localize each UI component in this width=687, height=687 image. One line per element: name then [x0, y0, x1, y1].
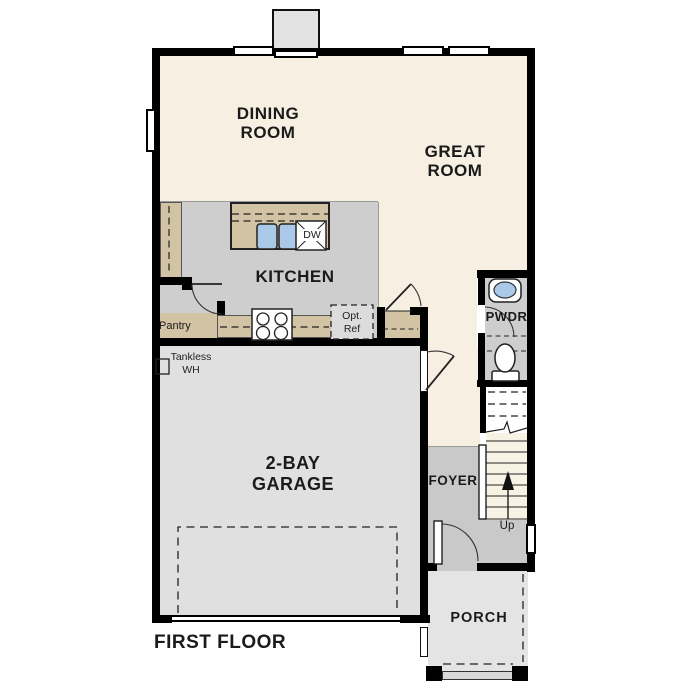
kitchen-dining-boundary	[160, 201, 378, 202]
hall-foyer-boundary	[428, 446, 480, 447]
window	[146, 109, 156, 152]
wall	[152, 338, 428, 346]
wall	[217, 301, 225, 315]
wall	[152, 615, 172, 623]
fireplace-bump-out	[272, 9, 320, 53]
kitchen-greatroom-boundary	[378, 202, 379, 312]
powder-room-label: PWDR	[484, 309, 529, 324]
wall	[377, 307, 385, 346]
garage-door-line	[172, 620, 400, 622]
wall	[477, 380, 535, 387]
kitchen-label: KITCHEN	[225, 267, 365, 286]
great-room-label: GREAT ROOM	[388, 142, 522, 180]
wall	[480, 387, 486, 433]
hallway-floor-lower	[428, 347, 480, 448]
pantry-label: Pantry	[159, 320, 207, 332]
stairs-upper-area	[486, 387, 527, 433]
kitchen-counter-left	[160, 202, 182, 278]
garage-door-line	[172, 615, 400, 617]
wall	[420, 563, 437, 571]
wall	[477, 270, 535, 278]
floor-plan: DINING ROOM GREAT ROOM KITCHEN Pantry Ta…	[0, 0, 687, 687]
wall	[152, 277, 184, 285]
floor-title: FIRST FLOOR	[154, 632, 354, 654]
window	[448, 46, 490, 56]
window	[526, 524, 536, 554]
garage-label: 2-BAY GARAGE	[223, 453, 363, 495]
porch-rail	[420, 627, 428, 657]
stairs-treads-area	[486, 433, 527, 520]
foyer-label: FOYER	[428, 473, 478, 488]
water-heater-label: Tankless WH	[165, 351, 217, 377]
coat-closet	[380, 311, 420, 339]
wall	[410, 307, 428, 315]
powder-room-floor	[484, 277, 527, 381]
wall	[400, 615, 430, 623]
window	[233, 46, 274, 56]
stairs-up-label: Up	[494, 520, 520, 532]
kitchen-island	[230, 202, 330, 250]
wall	[477, 563, 535, 571]
garage-entry-door-leaf	[420, 350, 428, 392]
wall	[182, 277, 192, 290]
kitchen-counter-bottom	[217, 315, 332, 338]
optional-fridge-label: Opt. Ref	[332, 310, 372, 336]
porch-post	[512, 666, 528, 681]
dining-room-label: DINING ROOM	[201, 104, 335, 142]
porch-post	[426, 666, 442, 681]
front-door-opening	[437, 563, 477, 571]
porch-step	[442, 671, 514, 680]
dishwasher-label: DW	[299, 229, 325, 241]
porch-label: PORCH	[429, 610, 529, 626]
window	[274, 50, 318, 58]
window	[402, 46, 444, 56]
